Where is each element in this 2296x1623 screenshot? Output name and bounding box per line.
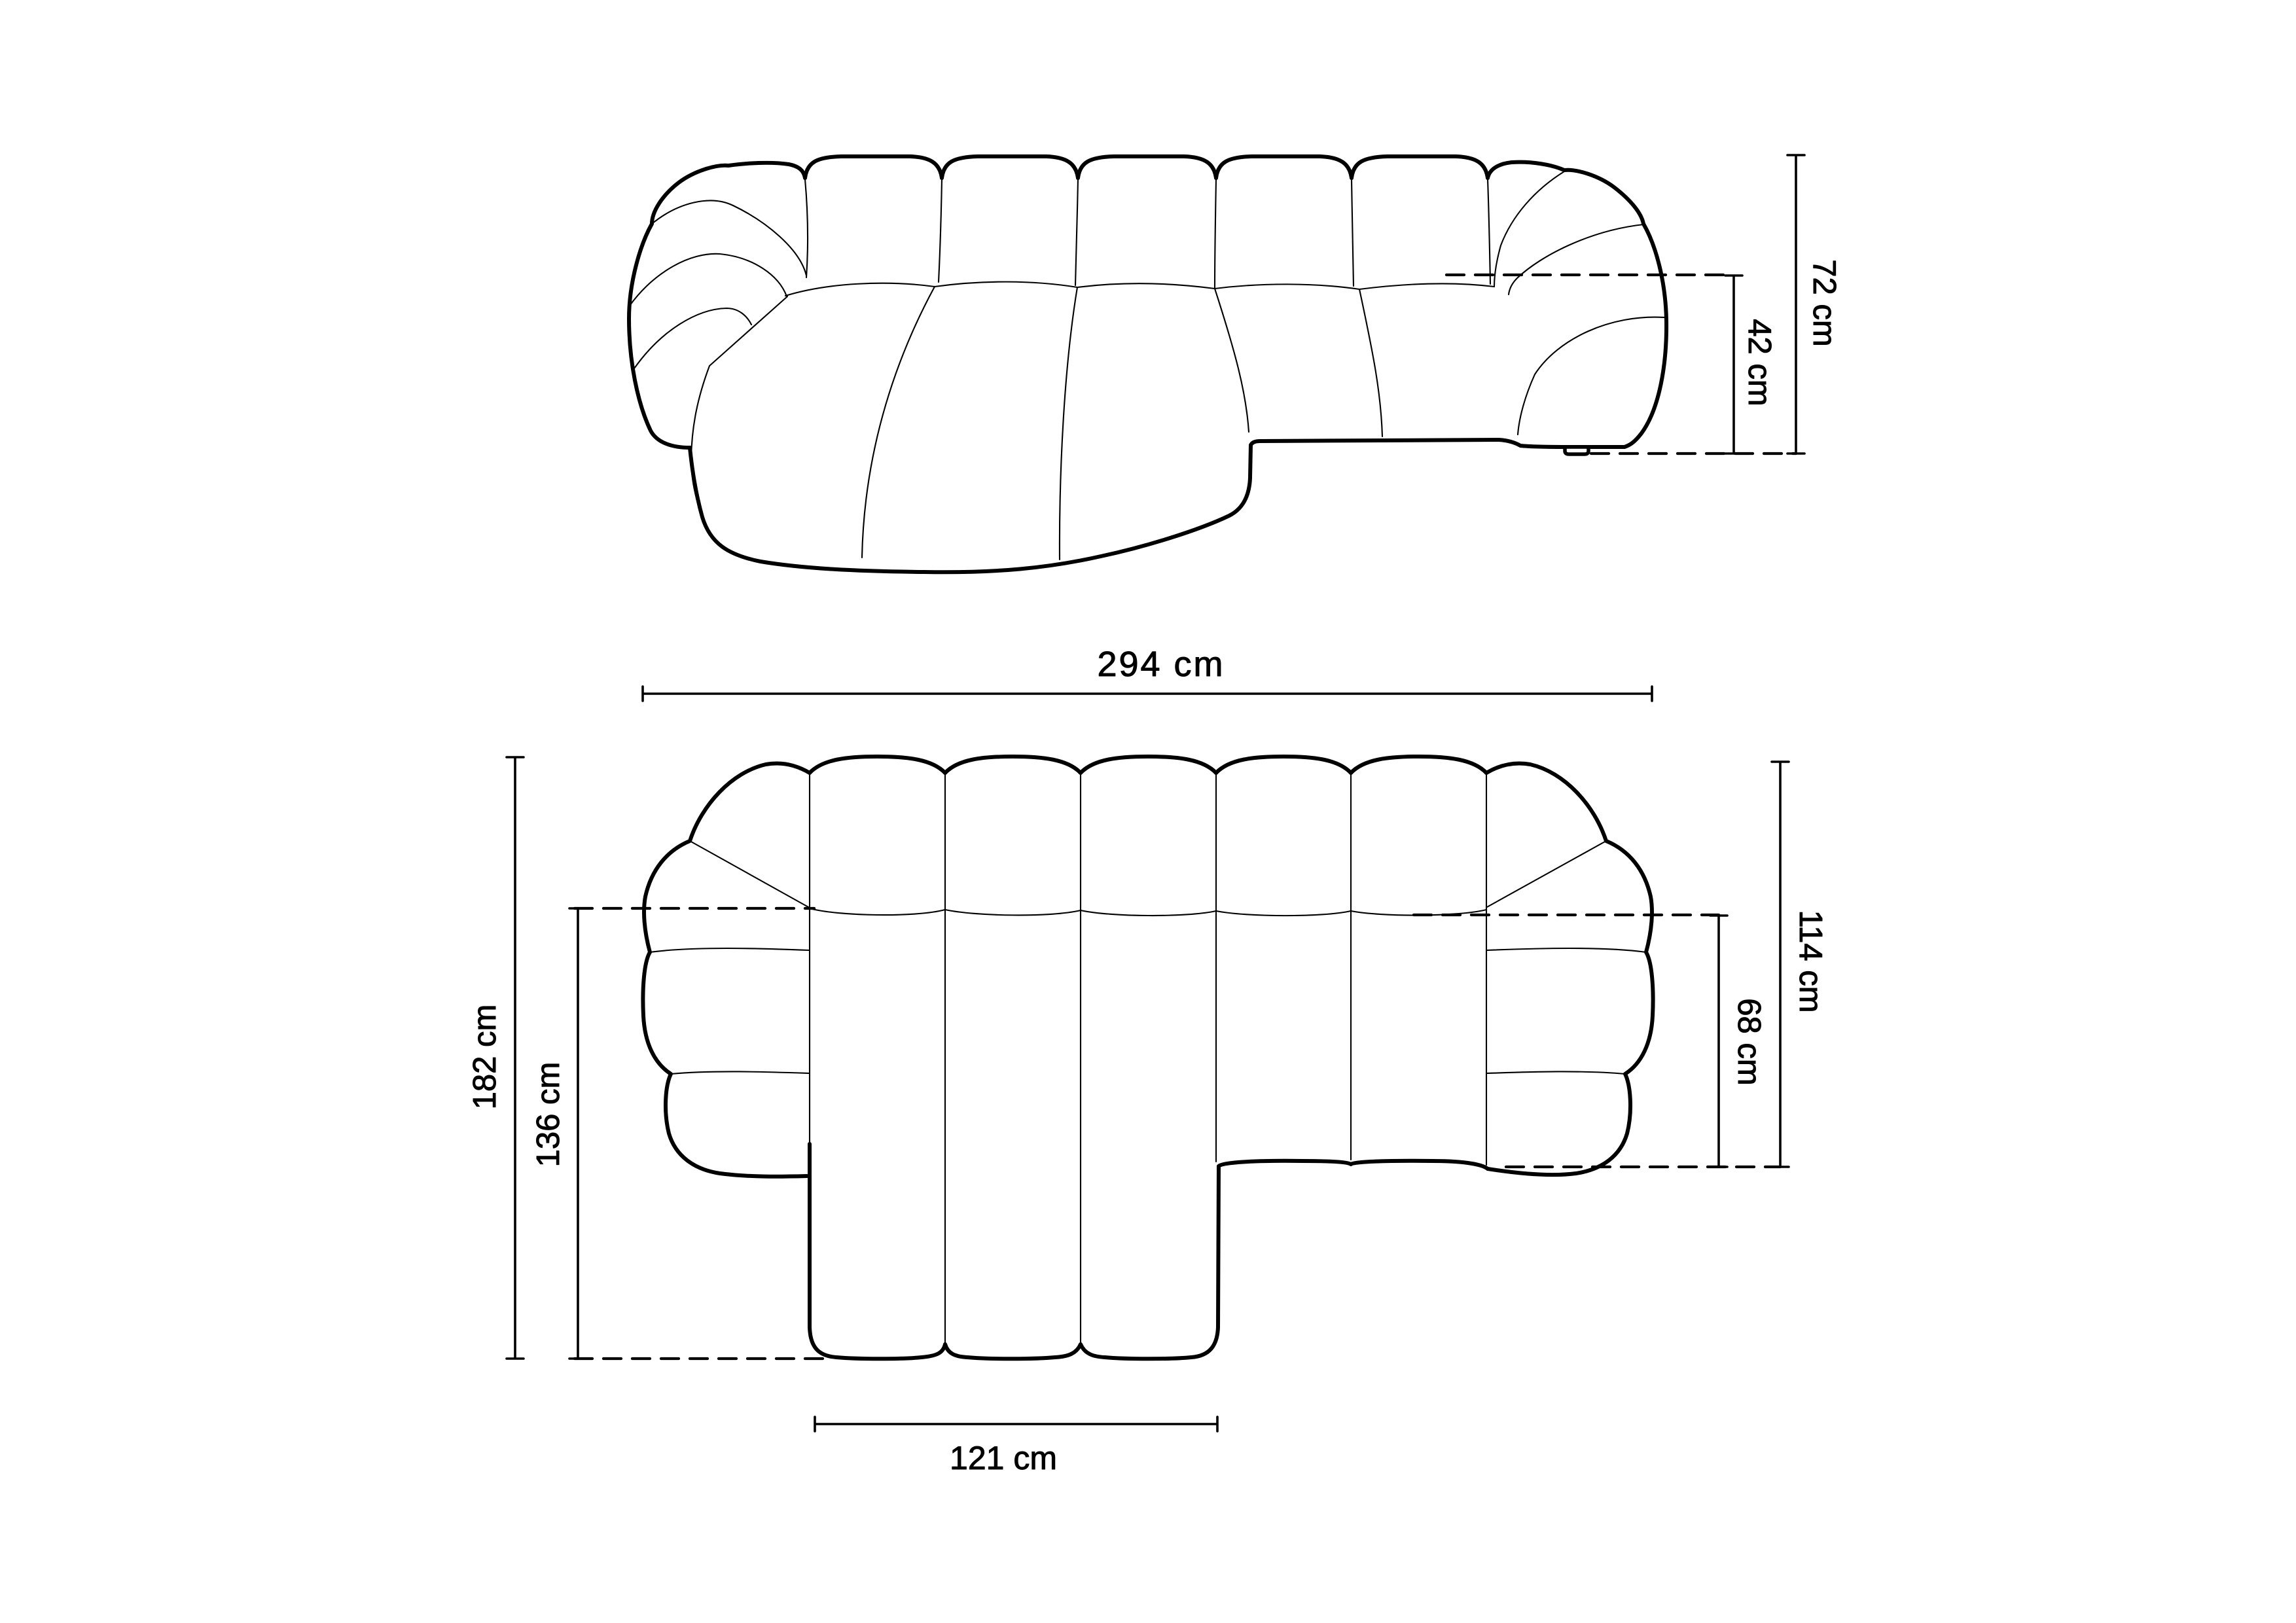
svg-text:182 cm: 182 cm <box>467 1005 503 1110</box>
svg-text:136 cm: 136 cm <box>531 1062 566 1168</box>
svg-text:68 cm: 68 cm <box>1731 998 1767 1085</box>
svg-text:72 cm: 72 cm <box>1806 259 1842 346</box>
svg-text:294 cm: 294 cm <box>1097 645 1225 684</box>
svg-text:42 cm: 42 cm <box>1742 319 1777 406</box>
svg-text:121 cm: 121 cm <box>950 1440 1057 1476</box>
svg-text:114 cm: 114 cm <box>1793 910 1828 1012</box>
